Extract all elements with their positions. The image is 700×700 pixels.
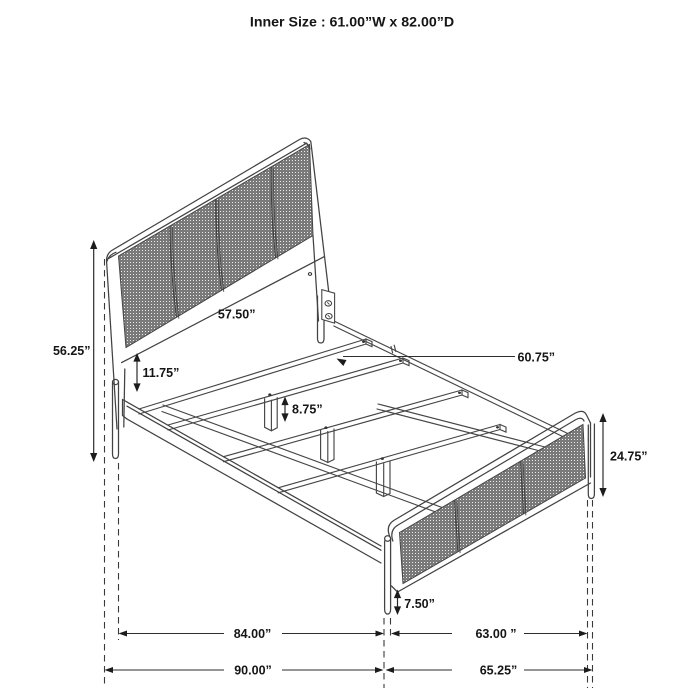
svg-text:Inner Size : 61.00”W x 82.00”D: Inner Size : 61.00”W x 82.00”D xyxy=(250,15,454,31)
svg-text:84.00”: 84.00” xyxy=(234,627,272,641)
svg-text:7.50”: 7.50” xyxy=(404,597,435,611)
svg-text:65.25”: 65.25” xyxy=(480,663,518,677)
svg-text:8.75”: 8.75” xyxy=(292,403,323,417)
svg-text:56.25”: 56.25” xyxy=(53,344,91,358)
svg-text:24.75”: 24.75” xyxy=(610,450,648,464)
svg-text:60.75”: 60.75” xyxy=(518,351,556,365)
svg-text:90.00”: 90.00” xyxy=(234,663,272,677)
svg-text:57.50”: 57.50” xyxy=(218,307,256,321)
svg-text:11.75”: 11.75” xyxy=(143,366,180,380)
svg-text:63.00 ”: 63.00 ” xyxy=(475,627,516,641)
